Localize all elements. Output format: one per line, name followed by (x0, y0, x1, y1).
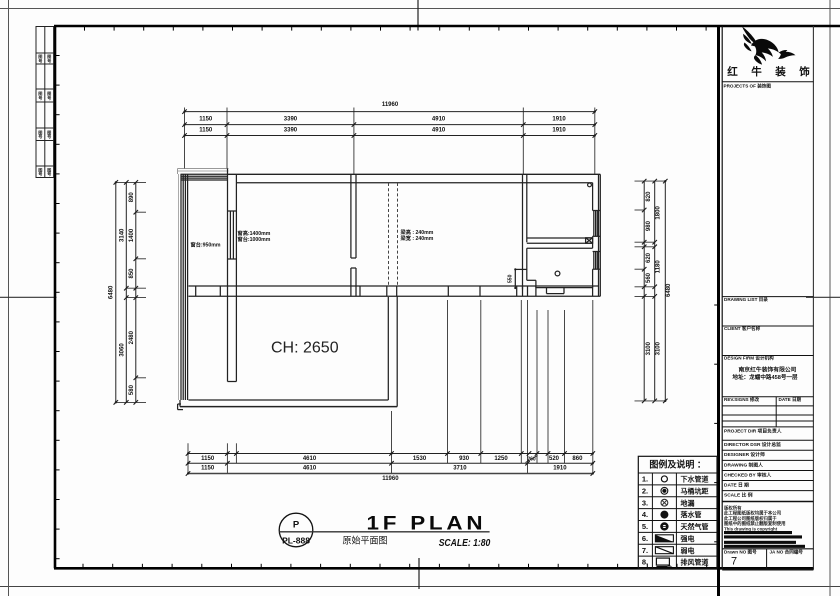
svg-text:CHECKED BY 审核人: CHECKED BY 审核人 (724, 471, 772, 478)
svg-text:2.: 2. (642, 486, 648, 495)
svg-text:DIRECTOR DSR 设计总监: DIRECTOR DSR 设计总监 (724, 441, 781, 448)
svg-text:980: 980 (646, 220, 652, 231)
svg-text:1910: 1910 (553, 466, 567, 472)
svg-text:牛: 牛 (751, 65, 762, 78)
svg-text:550: 550 (508, 274, 514, 283)
svg-text:930: 930 (459, 456, 470, 462)
svg-text:红: 红 (727, 65, 738, 78)
svg-text:4.: 4. (642, 510, 648, 519)
svg-text:强电: 强电 (681, 534, 695, 543)
svg-text:6480: 6480 (666, 283, 672, 297)
svg-text:3710: 3710 (453, 466, 467, 472)
svg-text:890: 890 (129, 192, 135, 203)
svg-text:11960: 11960 (382, 476, 399, 482)
svg-text:号: 号 (47, 57, 51, 64)
svg-text:号: 号 (47, 133, 51, 140)
svg-text:弱电: 弱电 (681, 546, 695, 555)
svg-text:地漏: 地漏 (681, 498, 695, 507)
svg-text:天然气管: 天然气管 (681, 522, 709, 531)
svg-text:PROJECTS OF 装饰图: PROJECTS OF 装饰图 (724, 82, 772, 89)
svg-text:1530: 1530 (413, 456, 427, 462)
svg-text:JA NO 合同编号: JA NO 合同编号 (770, 548, 804, 555)
svg-text:6.: 6. (642, 534, 648, 543)
svg-text:Drawn NO 图号: Drawn NO 图号 (724, 548, 757, 555)
svg-text:3140: 3140 (119, 228, 125, 242)
svg-text:号: 号 (47, 171, 51, 178)
svg-text:3100: 3100 (646, 341, 652, 355)
svg-text:4910: 4910 (432, 128, 446, 134)
svg-text:CLIENT 客户名称: CLIENT 客户名称 (724, 325, 761, 332)
svg-text:CH: 2650: CH: 2650 (271, 340, 339, 357)
svg-text:SCALE: 1:80: SCALE: 1:80 (439, 537, 491, 549)
svg-text:号: 号 (38, 57, 42, 64)
svg-text:1150: 1150 (199, 128, 213, 134)
svg-text:580: 580 (129, 384, 135, 395)
svg-text:1910: 1910 (552, 117, 566, 123)
svg-text:饰: 饰 (799, 65, 810, 78)
svg-text:排风管道: 排风管道 (681, 558, 709, 567)
svg-text:620: 620 (646, 252, 652, 263)
svg-text:2480: 2480 (129, 330, 135, 344)
svg-text:6480: 6480 (109, 285, 115, 299)
svg-text:DESIGN FIRM 设计机构: DESIGN FIRM 设计机构 (724, 355, 774, 362)
svg-text:11960: 11960 (382, 102, 399, 108)
svg-text:号: 号 (47, 94, 51, 101)
svg-text:PROJECT DIR 项目负责人: PROJECT DIR 项目负责人 (724, 428, 782, 435)
svg-text:520: 520 (549, 456, 560, 462)
svg-text:号: 号 (38, 171, 42, 178)
svg-text:3100: 3100 (656, 341, 662, 355)
svg-text:820: 820 (646, 191, 652, 202)
svg-text:1150: 1150 (199, 117, 213, 123)
svg-text:1400: 1400 (129, 228, 135, 242)
svg-text:窗台:950mm: 窗台:950mm (191, 241, 221, 249)
svg-text:梁宽 : 240mm: 梁宽 : 240mm (401, 234, 434, 242)
svg-text:南京红牛装饰有限公司: 南京红牛装饰有限公司 (739, 365, 797, 373)
svg-text:1150: 1150 (201, 456, 215, 462)
svg-text:DRAWING LIST 目录: DRAWING LIST 目录 (724, 296, 768, 303)
svg-text:梁高 : 240mm: 梁高 : 240mm (401, 228, 434, 236)
svg-text:860: 860 (572, 456, 583, 462)
svg-text:地址：龙蟠中路458号一层: 地址：龙蟠中路458号一层 (732, 373, 798, 381)
svg-text:1.: 1. (642, 475, 648, 484)
svg-text:马桶坑距: 马桶坑距 (681, 486, 709, 495)
svg-text:560: 560 (646, 272, 652, 283)
svg-text:号: 号 (38, 133, 42, 140)
svg-text:P: P (293, 520, 300, 531)
svg-text:落水管: 落水管 (681, 510, 702, 519)
svg-text:850: 850 (129, 268, 135, 279)
svg-text:1800: 1800 (656, 206, 662, 220)
svg-text:DESIGNER 设计师: DESIGNER 设计师 (724, 451, 765, 458)
svg-text:8.: 8. (642, 558, 648, 567)
svg-text:图例及说明 ：: 图例及说明 ： (649, 459, 706, 470)
svg-text:This drawing is copyright: This drawing is copyright (724, 527, 778, 532)
svg-text:3390: 3390 (284, 117, 298, 123)
svg-text:4910: 4910 (432, 117, 446, 123)
svg-text:3.: 3. (642, 498, 648, 507)
svg-text:4610: 4610 (303, 466, 317, 472)
svg-text:DATE 日期: DATE 日期 (779, 396, 802, 403)
svg-text:装: 装 (774, 65, 786, 78)
svg-text:REV.SIGNS 修改: REV.SIGNS 修改 (724, 396, 759, 403)
svg-text:1910: 1910 (552, 128, 566, 134)
svg-text:号: 号 (38, 94, 42, 101)
svg-text:5.: 5. (642, 522, 648, 531)
svg-text:窗高:1400mm: 窗高:1400mm (238, 229, 271, 237)
svg-text:4610: 4610 (303, 456, 317, 462)
svg-text:PL-888: PL-888 (282, 536, 310, 546)
svg-text:SCALE 比 例: SCALE 比 例 (724, 492, 753, 499)
svg-text:DATE 日 期: DATE 日 期 (724, 481, 749, 488)
svg-text:1180: 1180 (656, 260, 662, 274)
svg-text:1150: 1150 (201, 466, 215, 472)
svg-text:1F PLAN: 1F PLAN (367, 513, 487, 534)
svg-text:3390: 3390 (284, 128, 298, 134)
svg-text:7: 7 (731, 555, 737, 567)
svg-text:DRAWING 制图人: DRAWING 制图人 (724, 461, 763, 468)
svg-text:窗台:1000mm: 窗台:1000mm (238, 235, 271, 243)
svg-text:3060: 3060 (119, 343, 125, 357)
svg-text:7.: 7. (642, 546, 648, 555)
svg-text:下水管道: 下水管道 (681, 475, 709, 484)
svg-text:原始平面图: 原始平面图 (343, 535, 388, 546)
svg-text:1250: 1250 (494, 456, 508, 462)
